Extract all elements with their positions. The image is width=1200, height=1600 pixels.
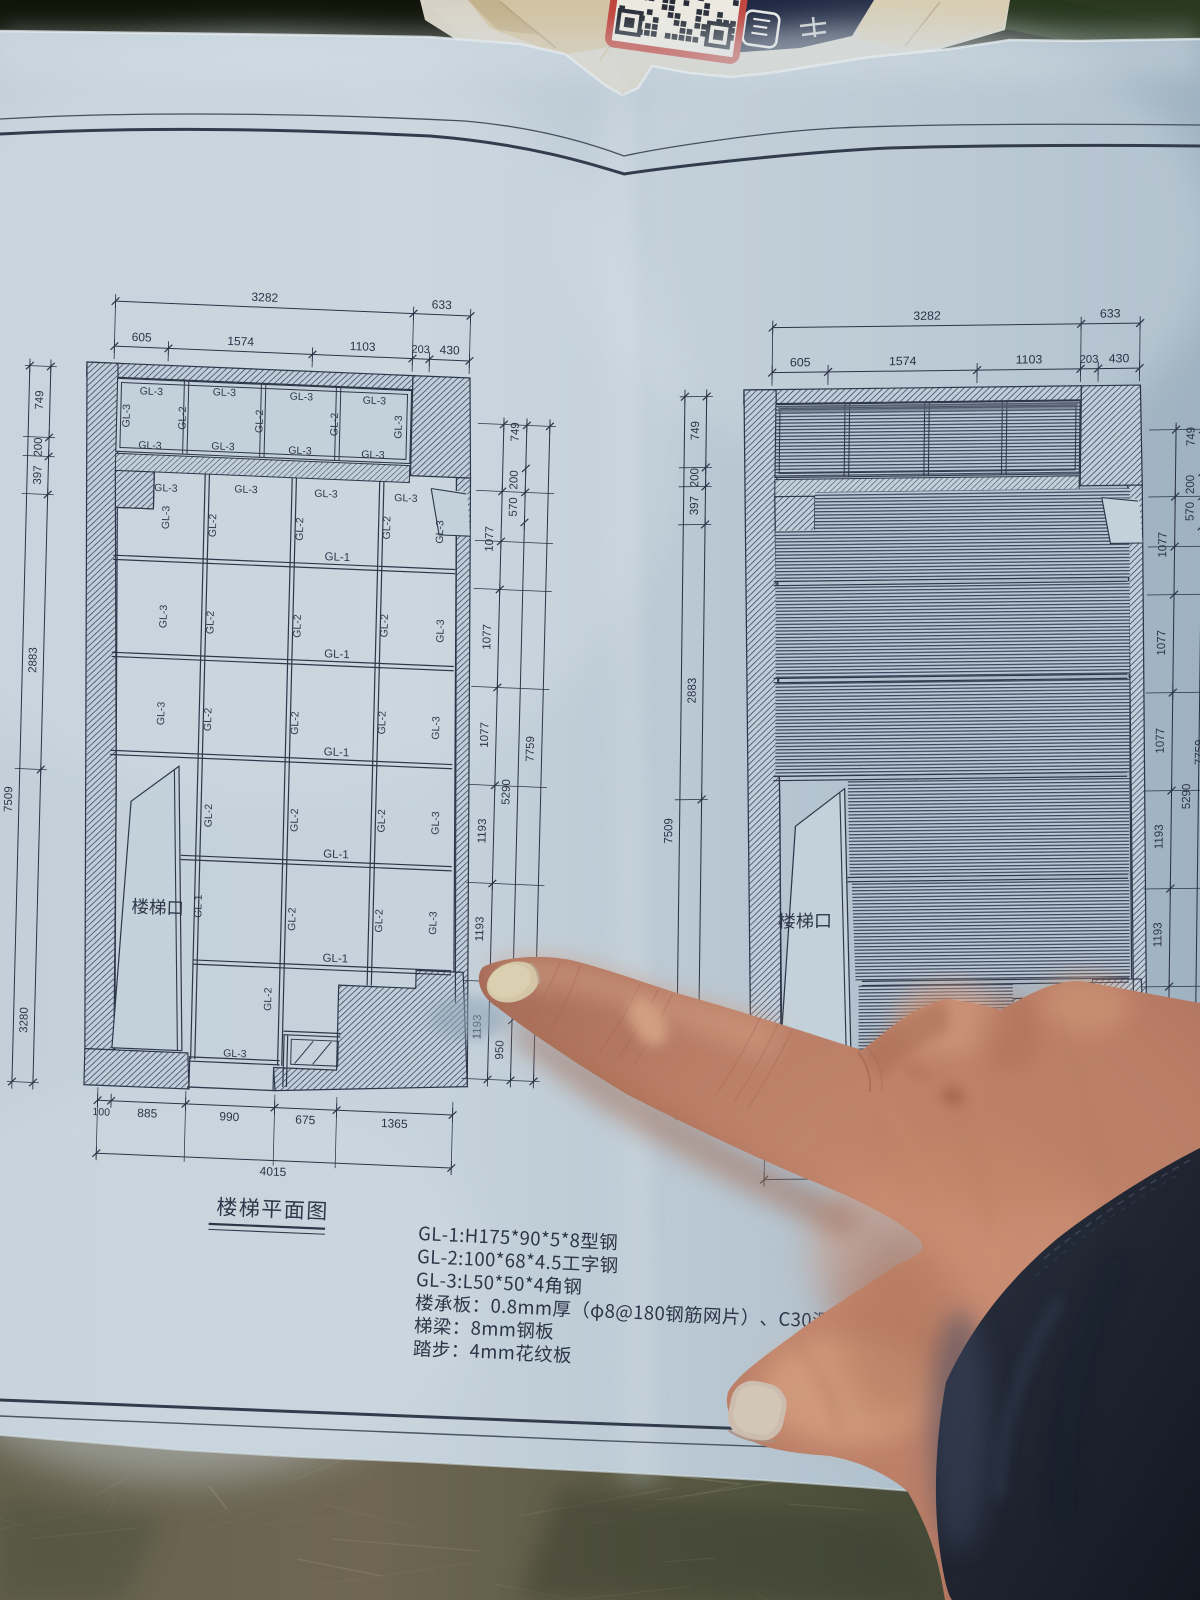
svg-text:200: 200	[1184, 474, 1197, 494]
svg-text:633: 633	[1100, 307, 1121, 321]
svg-text:GL-2: GL-2	[378, 614, 391, 638]
svg-text:GL-3: GL-3	[160, 505, 173, 529]
svg-text:GL-3: GL-3	[361, 449, 385, 462]
svg-text:GL-2: GL-2	[376, 711, 389, 735]
svg-text:GL-3: GL-3	[157, 604, 170, 628]
svg-text:885: 885	[137, 1106, 158, 1121]
svg-text:1193: 1193	[476, 818, 489, 843]
svg-text:203: 203	[411, 344, 430, 357]
svg-text:430: 430	[1109, 351, 1130, 365]
svg-text:3282: 3282	[251, 290, 278, 305]
svg-text:GL-3: GL-3	[211, 440, 235, 453]
svg-text:GL-3: GL-3	[213, 386, 237, 399]
svg-text:100: 100	[92, 1106, 110, 1119]
svg-text:570: 570	[1183, 501, 1196, 521]
svg-text:GL-2: GL-2	[262, 987, 275, 1011]
svg-text:GL-2: GL-2	[204, 610, 217, 634]
svg-text:1077: 1077	[479, 722, 492, 748]
svg-text:397: 397	[688, 496, 701, 515]
svg-text:GL-1: GL-1	[323, 848, 349, 861]
svg-text:GL-3: GL-3	[138, 439, 162, 452]
svg-text:GL-3: GL-3	[434, 520, 447, 544]
svg-text:200: 200	[33, 437, 45, 457]
svg-text:GL-3: GL-3	[140, 385, 164, 398]
svg-text:1193: 1193	[474, 916, 487, 941]
svg-text:675: 675	[295, 1112, 316, 1127]
svg-text:GL-2: GL-2	[253, 409, 266, 433]
svg-text:1077: 1077	[481, 624, 494, 650]
svg-text:1103: 1103	[1016, 352, 1043, 366]
svg-text:GL-2: GL-2	[202, 707, 215, 731]
svg-text:GL-3: GL-3	[120, 404, 133, 428]
svg-text:GL-3: GL-3	[434, 619, 447, 643]
svg-text:397: 397	[32, 465, 44, 485]
svg-text:GL-3: GL-3	[363, 395, 387, 408]
svg-text:GL-2: GL-2	[381, 516, 394, 540]
svg-text:GL-1: GL-1	[192, 894, 205, 918]
svg-text:GL-3: GL-3	[394, 492, 418, 505]
svg-text:633: 633	[432, 297, 453, 312]
svg-text:1077: 1077	[484, 526, 497, 552]
svg-text:570: 570	[508, 497, 520, 517]
svg-text:GL-2: GL-2	[207, 513, 220, 537]
svg-text:5290: 5290	[500, 779, 513, 805]
svg-text:605: 605	[131, 330, 152, 345]
svg-text:1574: 1574	[889, 354, 917, 368]
svg-text:430: 430	[439, 343, 460, 358]
svg-text:GL-2: GL-2	[288, 808, 301, 832]
svg-text:GL-3: GL-3	[314, 488, 338, 501]
svg-text:GL-3: GL-3	[430, 716, 443, 740]
svg-text:1574: 1574	[227, 334, 254, 349]
svg-text:990: 990	[219, 1109, 240, 1124]
svg-text:GL-2: GL-2	[203, 803, 216, 827]
svg-text:GL-3: GL-3	[290, 391, 314, 404]
svg-text:GL-3: GL-3	[430, 811, 443, 835]
svg-text:GL-2: GL-2	[328, 412, 341, 436]
svg-text:GL-1: GL-1	[322, 952, 348, 965]
svg-text:GL-1: GL-1	[324, 648, 350, 661]
svg-text:GL-3: GL-3	[154, 482, 178, 495]
svg-text:1077: 1077	[1154, 728, 1168, 754]
svg-text:GL-2: GL-2	[294, 517, 307, 541]
svg-text:GL-2: GL-2	[291, 614, 304, 638]
svg-text:203: 203	[1079, 354, 1098, 366]
svg-text:7759: 7759	[524, 736, 537, 762]
svg-text:GL-3: GL-3	[223, 1047, 247, 1060]
svg-text:1077: 1077	[1155, 630, 1169, 656]
svg-text:200: 200	[688, 467, 701, 487]
svg-text:1193: 1193	[1152, 824, 1166, 849]
svg-text:GL-3: GL-3	[234, 483, 258, 496]
svg-text:605: 605	[790, 355, 811, 369]
svg-text:7759: 7759	[1193, 739, 1200, 765]
svg-text:5290: 5290	[1180, 783, 1194, 809]
svg-text:1193: 1193	[1151, 922, 1165, 947]
svg-text:GL-3: GL-3	[155, 701, 168, 725]
svg-text:3282: 3282	[913, 309, 941, 323]
svg-text:GL-3: GL-3	[288, 445, 312, 458]
svg-text:749: 749	[689, 421, 702, 440]
svg-text:200: 200	[508, 470, 520, 490]
svg-text:GL-2: GL-2	[376, 809, 389, 833]
svg-text:GL-3: GL-3	[392, 415, 405, 439]
svg-text:GL-2: GL-2	[289, 711, 302, 735]
svg-text:GL-2: GL-2	[373, 909, 386, 933]
svg-text:1365: 1365	[381, 1116, 408, 1131]
svg-text:GL-1: GL-1	[324, 746, 350, 759]
svg-text:7509: 7509	[662, 818, 676, 844]
svg-text:GL-1: GL-1	[324, 551, 350, 564]
svg-text:1103: 1103	[350, 339, 376, 354]
svg-text:2883: 2883	[27, 647, 40, 673]
svg-text:749: 749	[34, 390, 46, 410]
svg-text:950: 950	[494, 1040, 506, 1060]
svg-text:4015: 4015	[259, 1164, 286, 1179]
svg-text:GL-3: GL-3	[427, 911, 440, 935]
svg-text:2883: 2883	[685, 678, 699, 704]
svg-text:1077: 1077	[1156, 532, 1170, 558]
svg-text:GL-2: GL-2	[176, 406, 189, 430]
svg-text:3280: 3280	[18, 1007, 31, 1033]
svg-text:GL-2: GL-2	[286, 907, 299, 931]
svg-text:7509: 7509	[3, 786, 16, 812]
